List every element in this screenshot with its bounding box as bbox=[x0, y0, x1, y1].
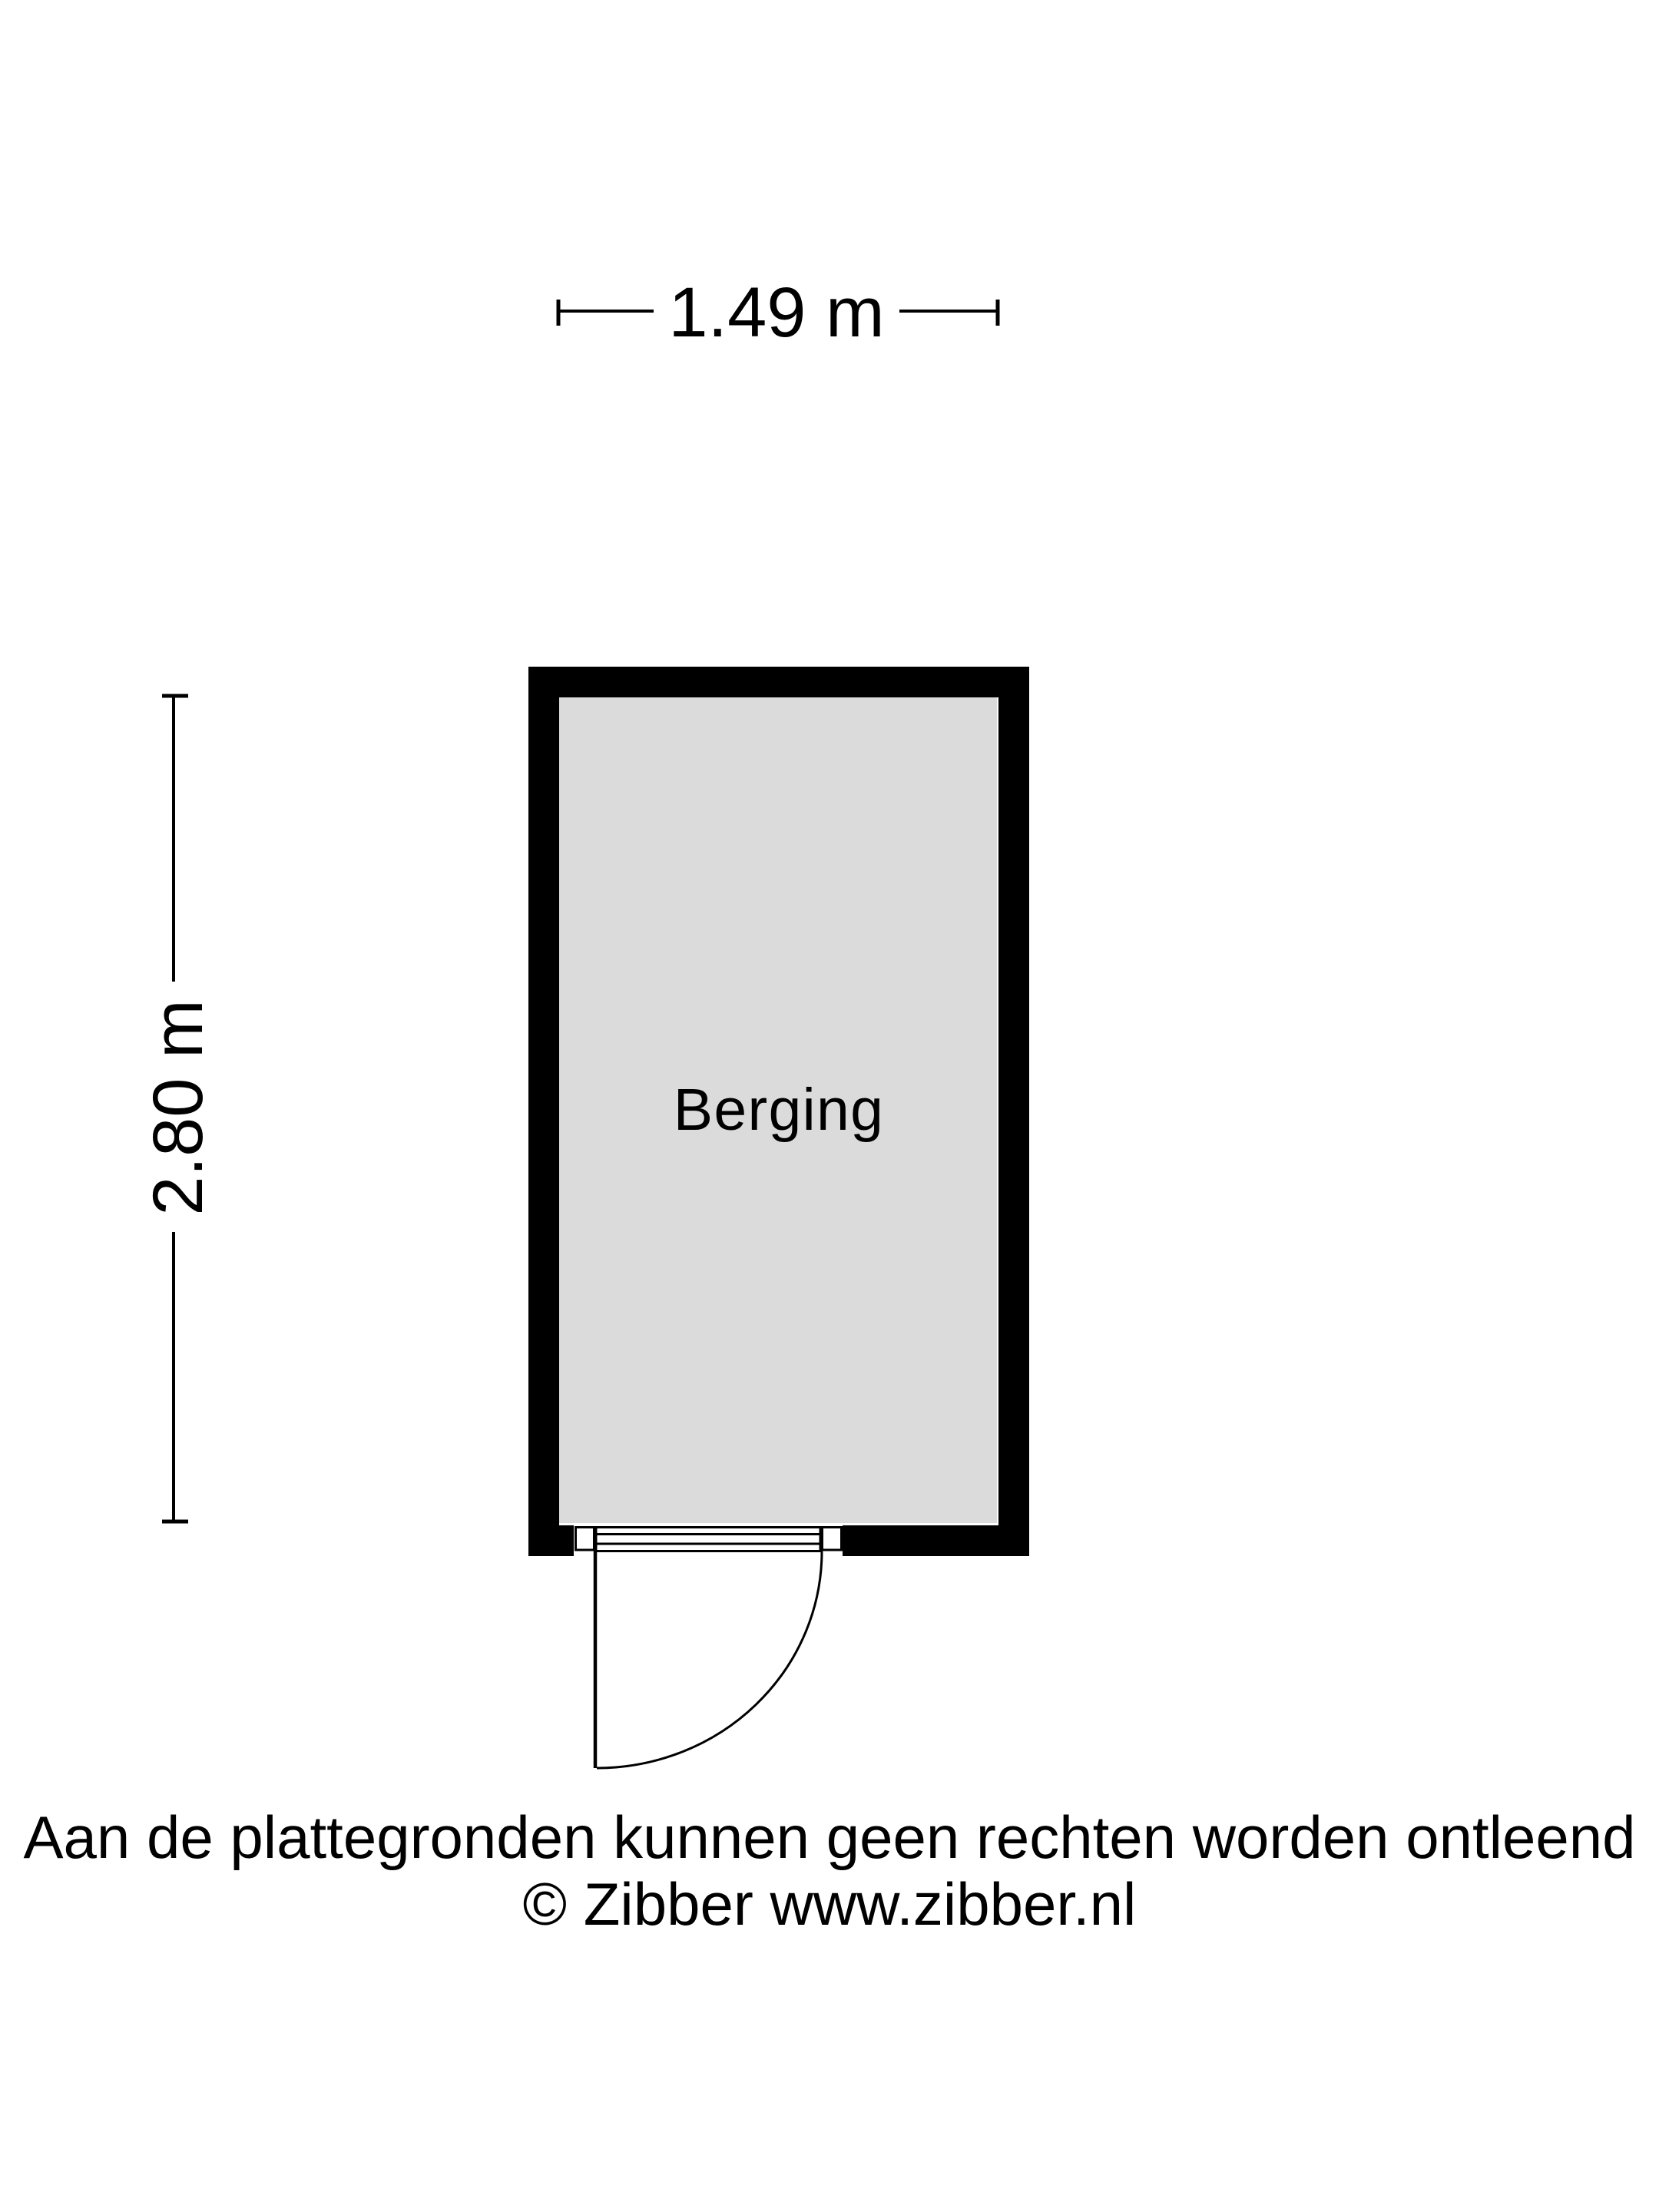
svg-text:Aan de plattegronden kunnen ge: Aan de plattegronden kunnen geen rechten… bbox=[24, 1803, 1636, 1871]
svg-text:© Zibber www.zibber.nl: © Zibber www.zibber.nl bbox=[523, 1870, 1137, 1938]
svg-text:Berging: Berging bbox=[674, 1077, 885, 1143]
svg-text:1.49 m: 1.49 m bbox=[668, 273, 884, 352]
svg-text:2.80 m: 2.80 m bbox=[139, 999, 217, 1215]
